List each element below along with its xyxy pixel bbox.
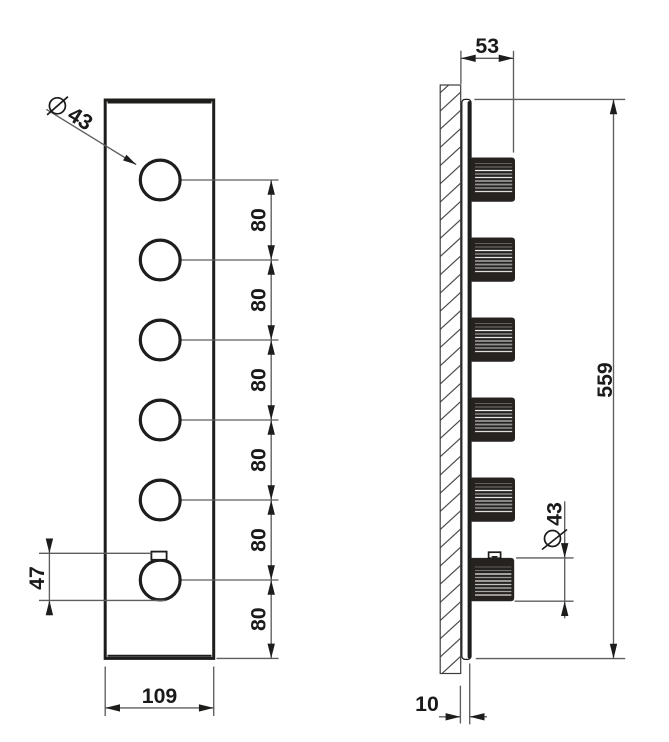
svg-text:109: 109 <box>142 684 178 708</box>
svg-text:80: 80 <box>247 448 271 472</box>
svg-text:10: 10 <box>415 692 439 716</box>
svg-text:80: 80 <box>247 368 271 392</box>
svg-text:43: 43 <box>543 502 567 526</box>
svg-text:80: 80 <box>247 528 271 552</box>
svg-text:559: 559 <box>593 362 617 398</box>
svg-text:80: 80 <box>247 208 271 232</box>
svg-text:80: 80 <box>247 607 271 631</box>
svg-text:47: 47 <box>25 566 49 590</box>
svg-text:53: 53 <box>475 34 499 58</box>
svg-text:80: 80 <box>247 288 271 312</box>
